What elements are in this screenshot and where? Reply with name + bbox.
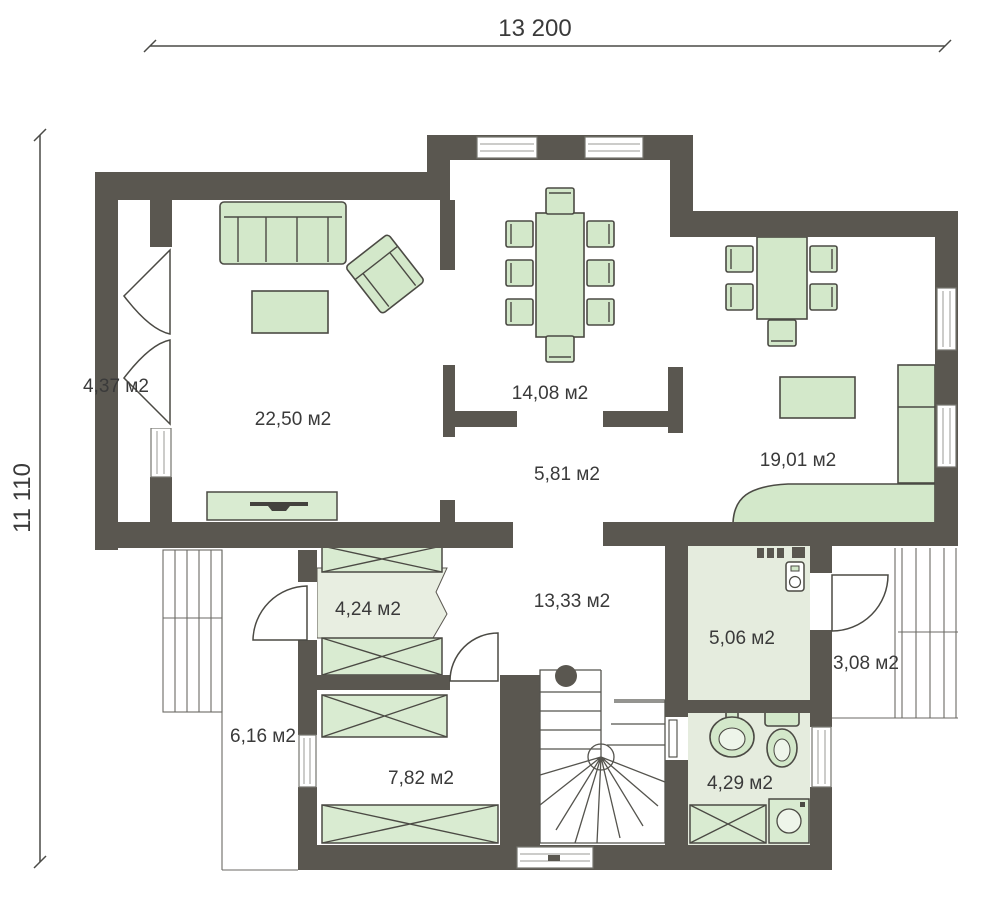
room-label-storage-room: 7,82 м2 (388, 768, 454, 789)
chair (506, 260, 533, 286)
chair (546, 336, 574, 362)
chair (810, 246, 837, 272)
chair (587, 221, 614, 247)
entry-porch-hatch (832, 548, 958, 718)
stair-outline (540, 670, 665, 843)
wardrobe-unit (322, 638, 442, 675)
terrace-steps-outline (163, 550, 222, 712)
terrace-steps-lines (163, 550, 222, 712)
room-label-hall: 13,33 м2 (534, 591, 610, 612)
chair (726, 246, 753, 272)
chair (587, 260, 614, 286)
kitchen-counter-right (898, 365, 935, 483)
wardrobe-unit (322, 695, 447, 737)
chair (546, 188, 574, 214)
dining-table (536, 213, 584, 337)
window (937, 288, 956, 350)
dining-furniture (506, 188, 614, 362)
room-label-living-room: 22,50 м2 (255, 409, 331, 430)
width-dimension-label: 13 200 (498, 15, 571, 42)
room-label-wardrobe: 4,24 м2 (335, 599, 401, 620)
wall-unit-icon (777, 548, 784, 558)
entry-door-leaf (832, 575, 888, 631)
chair (810, 284, 837, 310)
kitchen-table (757, 237, 807, 319)
stair-right-flight (607, 702, 665, 745)
entry-door-opening (810, 573, 832, 630)
room-label-dining-room: 14,08 м2 (512, 383, 588, 404)
wall-unit-icon (757, 548, 764, 558)
living-room-furniture (207, 202, 425, 520)
room-label-terrace: 6,16 м2 (230, 726, 296, 747)
armchair (345, 234, 424, 315)
window (299, 735, 316, 787)
window (151, 428, 171, 477)
storage-door-leaf (450, 633, 498, 681)
floor-plan-svg: 13 200 11 110 4,37 м2 22,50 м2 14,08 м2 … (0, 0, 1000, 900)
floor-plan-canvas: 13 200 11 110 4,37 м2 22,50 м2 14,08 м2 … (0, 0, 1000, 900)
chair (726, 284, 753, 310)
room-label-passage: 5,81 м2 (534, 464, 600, 485)
french-door-leaf (124, 250, 170, 334)
bathroom-cabinet (690, 805, 766, 843)
kitchen-counter-bottom (733, 484, 935, 523)
room-label-entry-porch: 3,08 м2 (833, 653, 899, 674)
window (585, 137, 643, 158)
chair (506, 299, 533, 325)
coffee-table (252, 291, 328, 333)
kitchen-furniture (726, 237, 935, 523)
stair-newel-post (555, 665, 577, 687)
entry-porch-lines (832, 548, 958, 718)
chair (587, 299, 614, 325)
terrace-door-leaf (253, 586, 307, 640)
height-dimension-label: 11 110 (9, 463, 36, 533)
room-label-boiler-room: 5,06 м2 (709, 628, 775, 649)
chair (768, 320, 796, 346)
sofa (220, 202, 346, 264)
tv (250, 502, 308, 506)
room-label-porch: 4,37 м2 (83, 376, 149, 397)
wardrobe-unit (322, 805, 498, 843)
staircase (540, 665, 665, 843)
chair (506, 221, 533, 247)
wall-unit-icon (767, 548, 774, 558)
wardrobe-unit (322, 546, 442, 572)
window (937, 405, 956, 467)
window (517, 847, 593, 868)
wall-unit-icon (792, 547, 805, 558)
window (812, 727, 831, 787)
room-label-kitchen: 19,01 м2 (760, 450, 836, 471)
room-label-bathroom: 4,29 м2 (707, 773, 773, 794)
kitchen-island (780, 377, 855, 418)
window (477, 137, 537, 158)
